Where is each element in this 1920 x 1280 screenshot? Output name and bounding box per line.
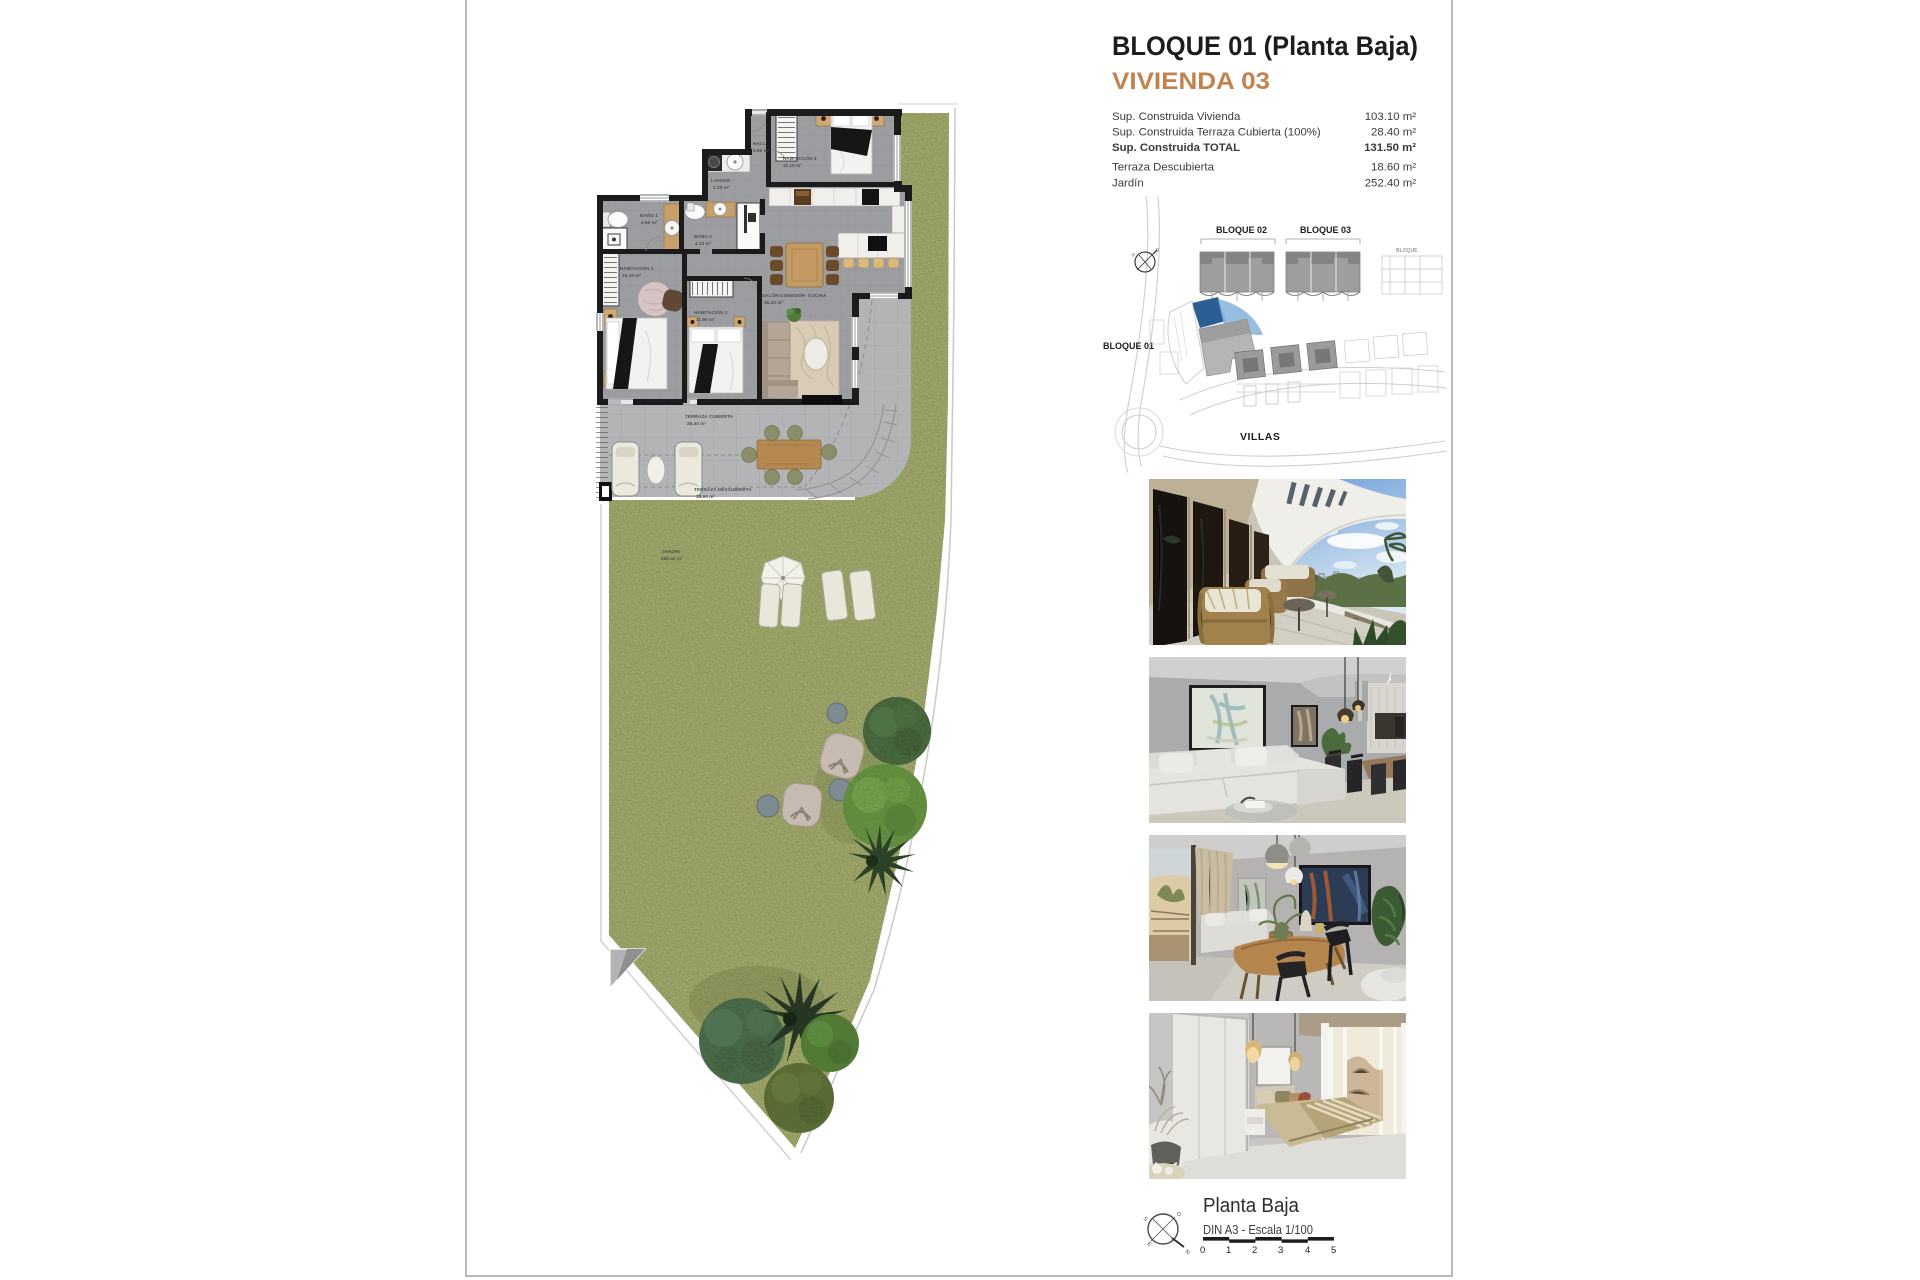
svg-text:Sup. Construida Vivienda: Sup. Construida Vivienda [1112,111,1241,123]
svg-text:BAÑO 2: BAÑO 2 [694,233,712,239]
svg-text:TERRAZA DESCUBIERTA: TERRAZA DESCUBIERTA [694,487,752,492]
svg-text:HABITACIÓN 3: HABITACIÓN 3 [783,154,817,161]
svg-text:Planta Baja: Planta Baja [1203,1195,1300,1217]
svg-text:36.40 m²: 36.40 m² [764,300,784,305]
svg-text:TERRAZA CUBIERTA: TERRAZA CUBIERTA [685,414,734,419]
svg-text:28.40 m²: 28.40 m² [687,421,707,426]
svg-text:2.20 m²: 2.20 m² [713,185,730,190]
svg-text:4.50 m²: 4.50 m² [641,220,658,225]
svg-text:2: 2 [1252,1245,1257,1256]
svg-text:252.40 m²: 252.40 m² [1365,178,1416,190]
svg-text:Sup. Construida Terraza Cubier: Sup. Construida Terraza Cubierta (100%) [1112,127,1321,139]
svg-text:VIVIENDA 03: VIVIENDA 03 [1112,68,1270,95]
svg-text:1: 1 [1226,1245,1231,1256]
svg-text:HABITACIÓN 1: HABITACIÓN 1 [620,264,654,271]
svg-text:Jardín: Jardín [1112,178,1144,190]
svg-text:BLOQUE 02: BLOQUE 02 [1216,225,1267,235]
svg-text:3: 3 [1278,1245,1283,1256]
svg-text:4: 4 [1305,1245,1310,1256]
svg-text:HABITACIÓN 2: HABITACIÓN 2 [694,308,728,315]
svg-text:2.80 m²: 2.80 m² [753,148,770,153]
svg-text:131.50 m²: 131.50 m² [1364,142,1416,154]
svg-text:JARDÍN: JARDÍN [662,547,680,554]
svg-text:SALÓN-COMEDOR- COCINA: SALÓN-COMEDOR- COCINA [762,291,827,298]
svg-text:11.10 m²: 11.10 m² [783,163,802,168]
svg-text:103.10 m²: 103.10 m² [1365,111,1416,123]
svg-text:Terraza Descubierta: Terraza Descubierta [1112,162,1215,174]
svg-text:BLOQUE 01 (Planta Baja): BLOQUE 01 (Planta Baja) [1112,31,1418,61]
svg-text:BLOQUE 01: BLOQUE 01 [1103,341,1154,351]
svg-text:28.40 m²: 28.40 m² [1371,127,1416,139]
svg-text:DIN A3 - Escala 1/100: DIN A3 - Escala 1/100 [1203,1223,1313,1237]
svg-text:0: 0 [1200,1245,1205,1256]
svg-text:15.40 m²: 15.40 m² [622,273,642,278]
svg-text:4.10 m²: 4.10 m² [695,241,712,246]
svg-text:18.60 m²: 18.60 m² [696,494,716,499]
svg-text:18.60 m²: 18.60 m² [1371,162,1416,174]
svg-text:11.90 m²: 11.90 m² [696,317,715,322]
svg-text:BLOQUE 03: BLOQUE 03 [1300,225,1351,235]
svg-text:Sup. Construida TOTAL: Sup. Construida TOTAL [1112,142,1240,154]
svg-text:5: 5 [1331,1245,1336,1256]
svg-text:BAÑO 1: BAÑO 1 [640,212,658,218]
svg-text:LAVADO: LAVADO [711,178,731,183]
svg-text:252.40 m²: 252.40 m² [661,556,683,561]
svg-text:VILLAS: VILLAS [1240,431,1280,443]
svg-text:BLOQUE: BLOQUE [1396,248,1418,254]
svg-text:HALL: HALL [753,141,766,146]
